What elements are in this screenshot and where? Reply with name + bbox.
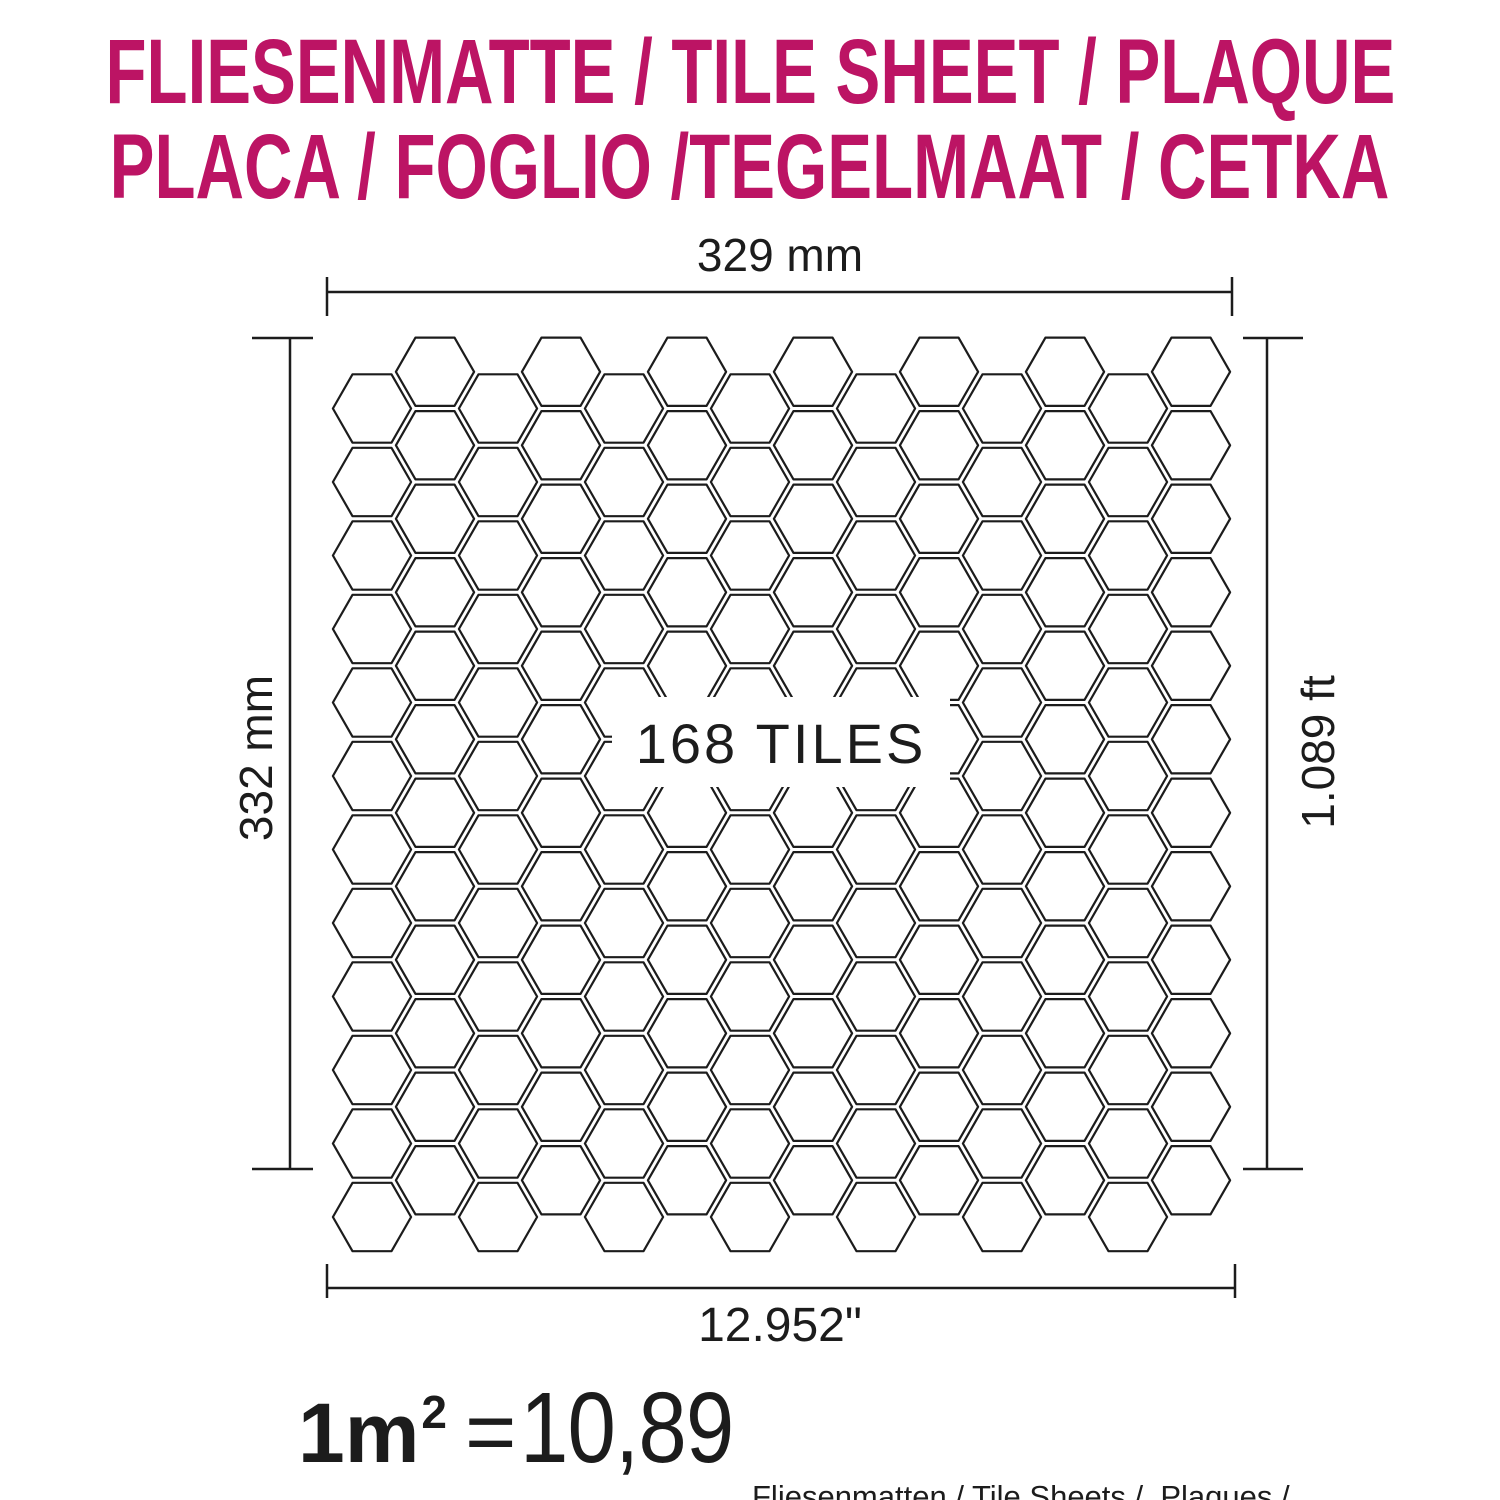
area-value: 1m xyxy=(298,1391,419,1475)
units-text: Fliesenmatten / Tile Sheets / Plaques / … xyxy=(752,1384,1312,1500)
units-line-1: Fliesenmatten / Tile Sheets / Plaques / xyxy=(752,1474,1312,1500)
title-line-1: FLIESENMATTE / TILE SHEET / PLAQUE xyxy=(0,26,1500,118)
hexagon-tiles xyxy=(333,338,1230,1252)
dimension-top-width: 329 mm xyxy=(580,230,980,280)
dimension-right-height: 1.089 ft xyxy=(1293,602,1343,902)
dimension-bottom-width: 12.952" xyxy=(580,1301,980,1351)
title-line-2: PLACA / FOGLIO /TEGELMAAT / CETKA xyxy=(0,121,1500,213)
area-exponent: 2 xyxy=(421,1389,447,1435)
equals-sign: = xyxy=(465,1388,516,1476)
dimension-left-height: 332 mm xyxy=(231,608,281,908)
tile-count-label: 168 TILES xyxy=(612,700,950,786)
product-sheet: FLIESENMATTE / TILE SHEET / PLAQUE PLACA… xyxy=(0,0,1500,1500)
sheets-per-sqm: 10,89 xyxy=(520,1378,733,1478)
coverage-formula: 1m2=10,89 xyxy=(298,1378,766,1478)
